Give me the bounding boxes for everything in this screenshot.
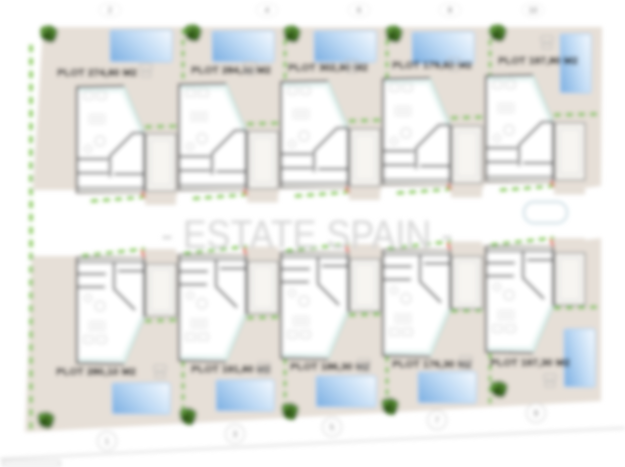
- svg-text:2: 2: [108, 6, 113, 15]
- svg-text:PLOT 274,60 M2: PLOT 274,60 M2: [57, 68, 137, 79]
- svg-text:7: 7: [435, 416, 440, 425]
- svg-text:PLOT 197,30 M2: PLOT 197,30 M2: [490, 358, 570, 369]
- svg-text:PLOT 197,80 M2: PLOT 197,80 M2: [498, 56, 578, 67]
- svg-text:8: 8: [448, 6, 453, 15]
- svg-text:5: 5: [330, 423, 335, 432]
- svg-text:6: 6: [357, 6, 362, 15]
- svg-text:1: 1: [105, 437, 110, 446]
- svg-text:10: 10: [529, 6, 538, 15]
- svg-text:3: 3: [233, 430, 238, 439]
- svg-text:PLOT 280,10 M2: PLOT 280,10 M2: [56, 367, 136, 378]
- svg-text:PLOT 284,30 M2: PLOT 284,30 M2: [191, 66, 271, 77]
- svg-text:4: 4: [265, 6, 270, 15]
- svg-text:- ESTATE SPAIN -: - ESTATE SPAIN -: [161, 213, 453, 257]
- svg-text:9: 9: [534, 409, 539, 418]
